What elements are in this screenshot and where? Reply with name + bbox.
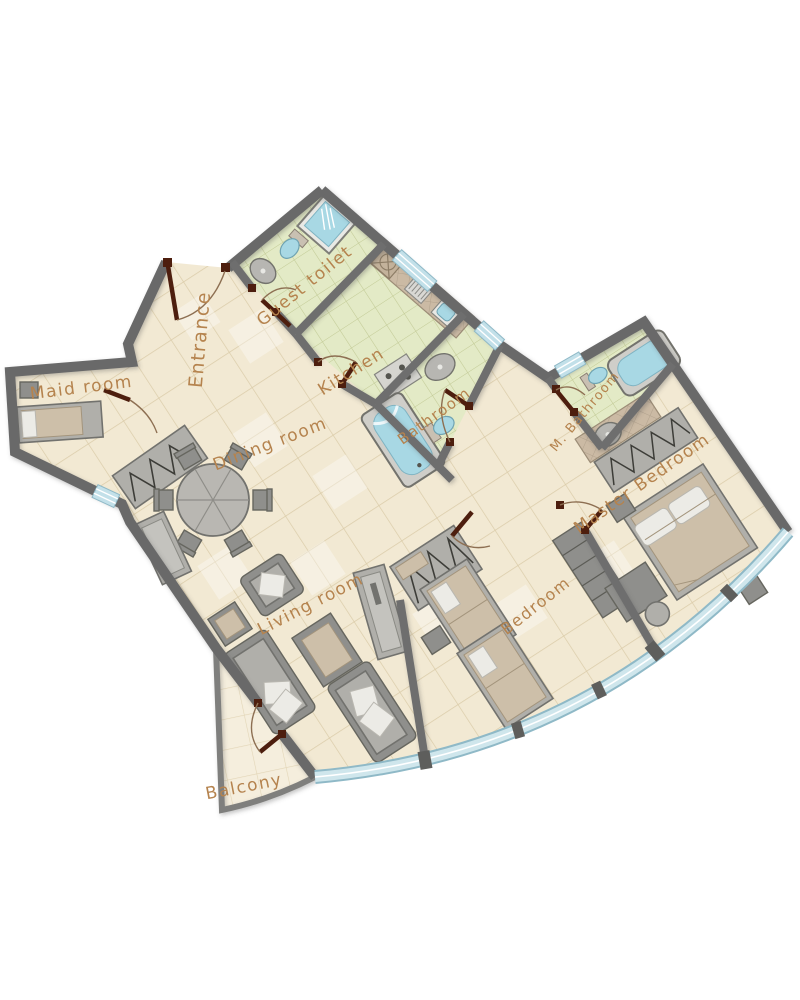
floor-plan-page: Entrance Guest toilet Kitchen Maid room … xyxy=(0,0,800,1000)
floor-plan: Entrance Guest toilet Kitchen Maid room … xyxy=(0,0,800,1000)
dining-chair xyxy=(253,489,272,511)
dining-chair xyxy=(154,489,173,511)
maid-bed xyxy=(17,401,103,443)
